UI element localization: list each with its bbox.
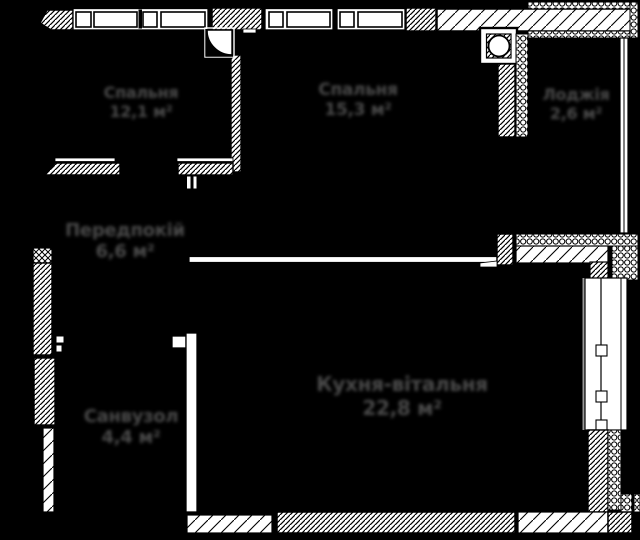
floor-plan: Спальня 12,1 м² Спальня 15,3 м² Лоджія 2…	[0, 0, 640, 540]
window-top-left-icon	[73, 9, 208, 31]
room-area: 2,6 м²	[542, 105, 609, 124]
hallway-top-wall	[45, 158, 233, 189]
door-jamb-icon	[56, 336, 64, 352]
room-name: Санвузол	[84, 406, 179, 427]
room-name: Спальня	[318, 80, 397, 100]
room-name: Спальня	[104, 83, 179, 102]
room-label-hallway: Передпокій 6,6 м²	[65, 220, 185, 262]
room-area: 15,3 м²	[318, 100, 397, 120]
vent-shaft-icon	[480, 28, 517, 64]
window-top-middle-icon	[265, 9, 405, 31]
room-area: 12,1 м²	[104, 103, 179, 122]
room-name: Кухня-вітальня	[316, 372, 488, 396]
door-jamb-icon	[187, 176, 198, 189]
loggia-bottom-wall	[480, 234, 638, 280]
room-label-bedroom-2: Спальня 15,3 м²	[318, 80, 397, 120]
room-name: Передпокій	[65, 220, 185, 241]
room-label-bedroom: Спальня 12,1 м²	[104, 84, 179, 122]
bedroom-divider-wall	[205, 28, 256, 172]
left-wall	[33, 248, 64, 512]
living-room-partition-line	[189, 257, 497, 263]
loggia-glazing	[620, 38, 628, 233]
room-area: 6,6 м²	[65, 241, 185, 262]
room-label-kitchen-living: Кухня-вітальня 22,8 м²	[316, 373, 488, 420]
door-swing-icon	[205, 28, 256, 57]
bottom-wall	[187, 512, 632, 533]
room-label-loggia: Лоджія 2,6 м²	[542, 86, 609, 124]
room-area: 4,4 м²	[84, 427, 179, 448]
top-wall	[40, 2, 638, 38]
room-label-bathroom: Санвузол 4,4 м²	[84, 406, 179, 448]
room-area: 22,8 м²	[316, 397, 488, 421]
window-right-icon	[583, 278, 628, 430]
room-name: Лоджія	[542, 85, 609, 104]
